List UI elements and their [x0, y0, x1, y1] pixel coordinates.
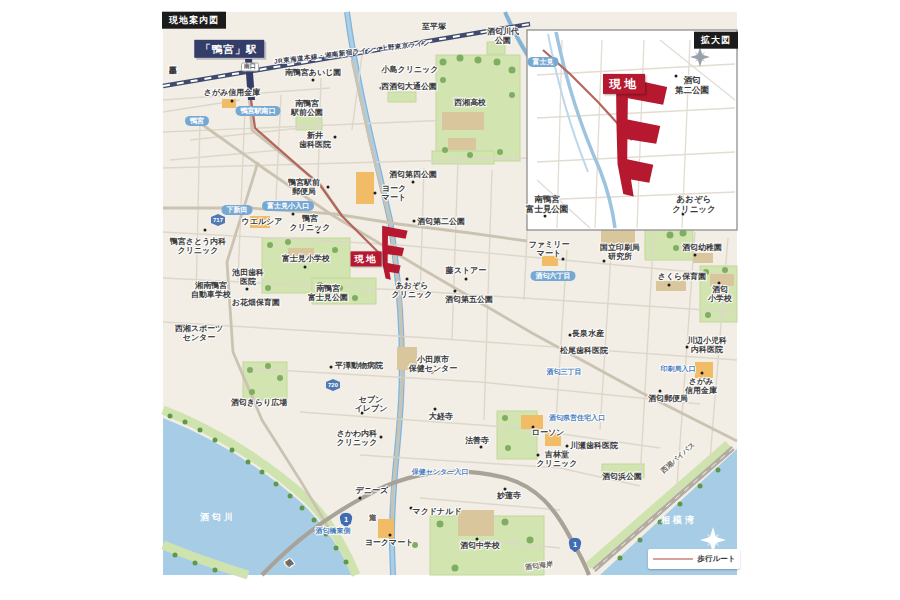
legend: 歩行ルート	[648, 549, 740, 569]
map-canvas: 現地案内図「鴨宮」駅南口至小田原JR東海道本線・湘南新宿ライン・上野東京ライン至…	[0, 0, 900, 600]
site-guide-map-page: 現地案内図「鴨宮」駅南口至小田原JR東海道本線・湘南新宿ライン・上野東京ライン至…	[0, 0, 900, 600]
walking-route-label: 歩行ルート	[698, 554, 736, 564]
map-artwork	[0, 0, 900, 600]
walking-route-line-sample	[653, 558, 693, 560]
inset-map	[527, 30, 737, 230]
